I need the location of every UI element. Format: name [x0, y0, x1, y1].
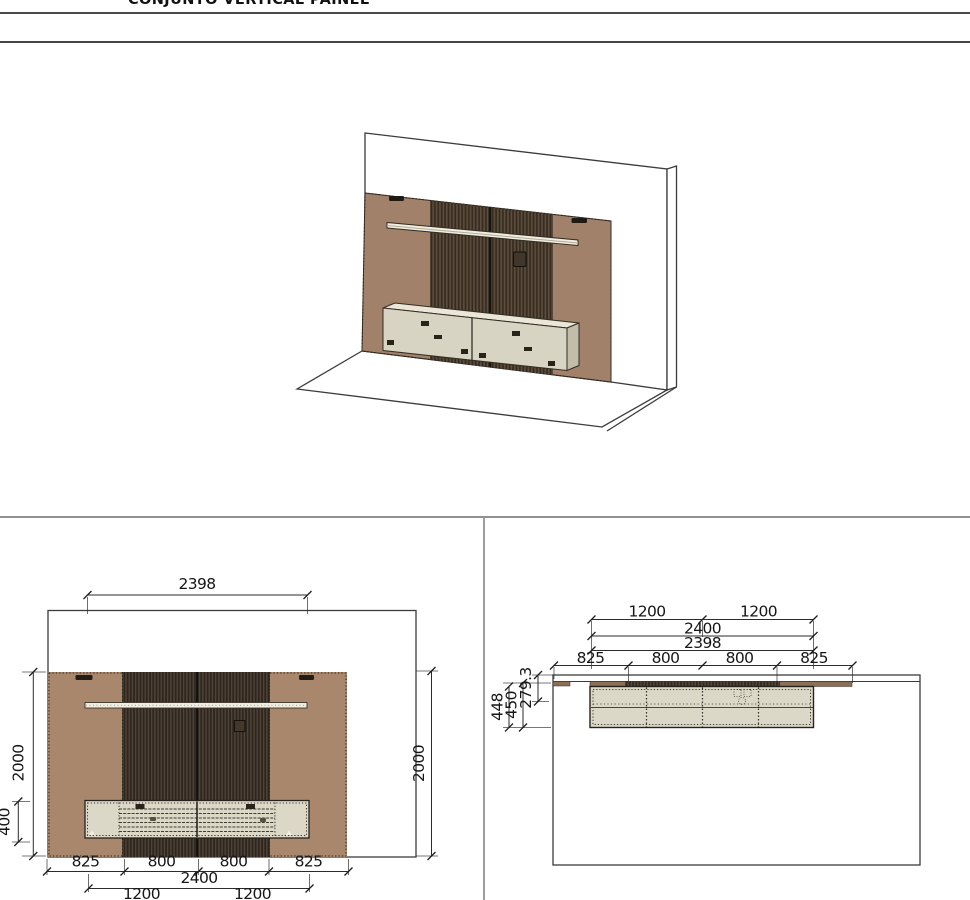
plan-wood-panel	[553, 682, 852, 687]
dim-label: 2400	[180, 869, 217, 887]
header-rule-top	[0, 12, 970, 14]
panel-divider-vertical	[483, 518, 485, 900]
dim-label: 825	[800, 649, 828, 667]
dim-label: 800	[220, 853, 248, 871]
dim-label: 800	[652, 649, 680, 667]
viewport-3d-view	[0, 43, 970, 516]
dim-label: 800	[726, 649, 754, 667]
dim-label: 1200	[234, 885, 271, 900]
dim-label: 1200	[740, 603, 777, 621]
viewport-plan-view: 1200 1200 2400 2398 825 800 800 825 448 …	[483, 517, 970, 900]
dim-label: 279.3	[517, 667, 535, 708]
viewport-front-elevation: 2398 2000 400 2000 825 800 800 825 2400 …	[0, 517, 483, 900]
front-brand-mark-right	[299, 675, 314, 680]
iso-tv-mount	[514, 252, 527, 267]
dim-label: 1200	[123, 885, 160, 900]
dim-label: 400	[0, 808, 14, 836]
dim-label: 2000	[10, 744, 28, 781]
dim-label: 1200	[628, 603, 665, 621]
sheet-title: CONJUNTO VERTICAL PAINEL	[128, 0, 368, 8]
front-cabinet-hinge-right	[246, 804, 255, 809]
dim-label: 2398	[178, 575, 215, 593]
front-cabinet-hinge-left	[136, 804, 145, 809]
dim-label: 2398	[684, 634, 721, 652]
front-cabinet	[85, 801, 309, 839]
iso-brand-mark-left	[389, 196, 404, 201]
dim-label: 825	[295, 853, 323, 871]
panel-divider-horizontal	[0, 516, 970, 518]
dim-label: 800	[148, 853, 176, 871]
front-shelf	[85, 703, 307, 709]
iso-brand-mark-right	[572, 218, 588, 223]
drawing-sheet: CONJUNTO VERTICAL PAINEL	[0, 0, 970, 900]
dim-label: 825	[577, 649, 605, 667]
dim-label: 825	[72, 853, 100, 871]
dim-label: 2000	[410, 745, 428, 782]
front-tv-mount	[235, 721, 246, 732]
front-brand-mark-left	[76, 675, 93, 680]
plan-slat-section	[625, 682, 780, 687]
plan-cabinet	[590, 687, 814, 728]
